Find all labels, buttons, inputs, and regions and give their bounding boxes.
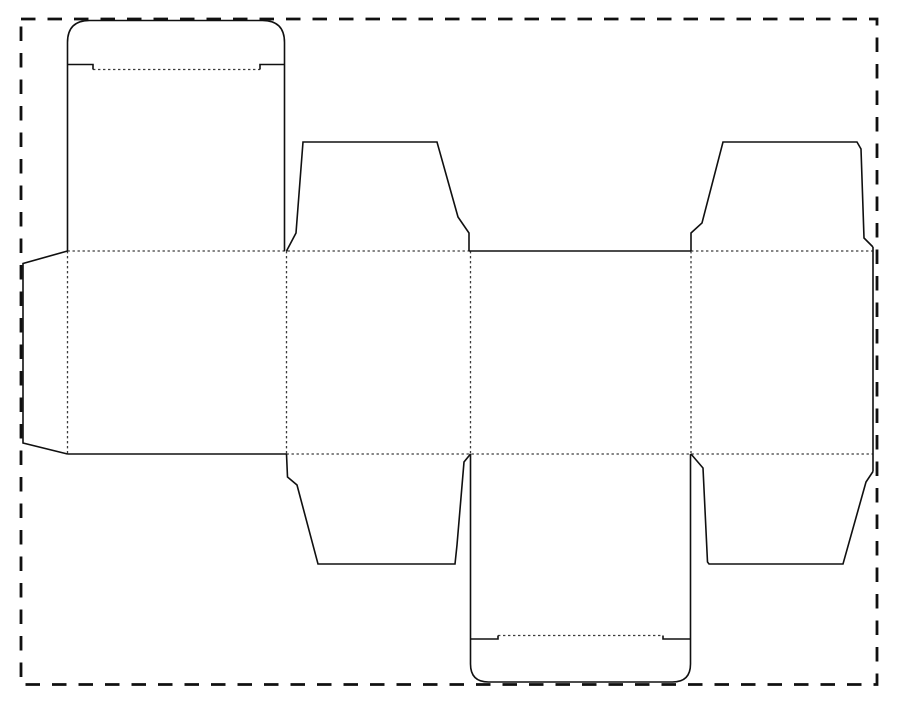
bottom-panel-and-tuck-outline — [471, 454, 691, 682]
top-tuck-right-shoulder — [260, 65, 285, 70]
lid-panel-and-tuck-outline — [68, 21, 285, 252]
bottom-tuck-right-shoulder — [663, 636, 691, 640]
top-tuck-left-shoulder — [68, 65, 94, 70]
box-dieline-drawing — [0, 0, 900, 708]
glue-flap-edge — [23, 251, 68, 454]
bottom-dust-flap-right-outline — [691, 454, 873, 564]
dieline-sheet — [0, 0, 900, 708]
top-dust-flap-left-outline — [287, 142, 470, 251]
cut-lines-group — [23, 21, 873, 683]
sheet-border — [21, 19, 877, 685]
top-dust-flap-right-outline — [691, 142, 873, 251]
bottom-dust-flap-left-outline — [287, 454, 471, 564]
bottom-tuck-left-shoulder — [471, 636, 499, 640]
